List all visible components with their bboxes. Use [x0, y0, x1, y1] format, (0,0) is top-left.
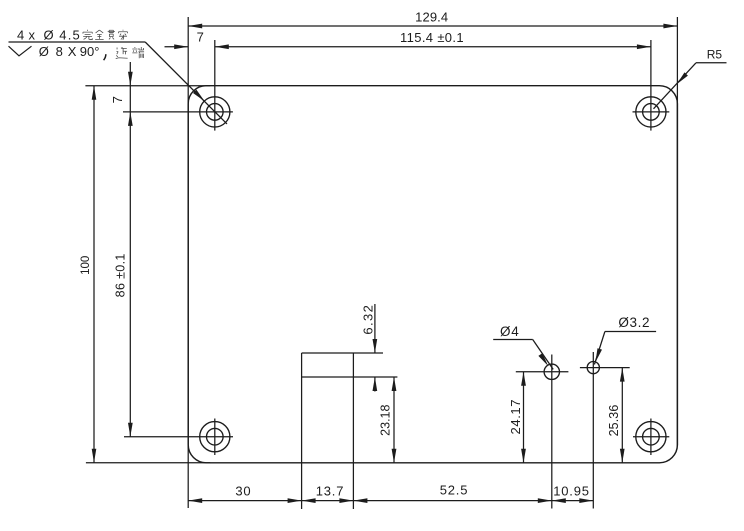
svg-text:4.5: 4.5	[59, 28, 81, 43]
svg-text:23.18: 23.18	[379, 405, 393, 436]
svg-text:10.95: 10.95	[553, 484, 590, 499]
svg-text:Ø4: Ø4	[500, 324, 519, 339]
svg-text:8: 8	[56, 44, 63, 59]
svg-text:6.32: 6.32	[360, 304, 375, 335]
svg-text:100: 100	[80, 256, 92, 275]
svg-text:25.36: 25.36	[607, 405, 621, 437]
svg-text:4: 4	[17, 28, 24, 43]
svg-text:90°: 90°	[80, 44, 100, 59]
svg-text:R5: R5	[707, 48, 723, 62]
svg-text:115.4 ±0.1: 115.4 ±0.1	[400, 30, 464, 45]
svg-text:129.4: 129.4	[415, 10, 448, 25]
svg-text:24.17: 24.17	[508, 399, 523, 435]
svg-text:7: 7	[197, 30, 204, 45]
svg-text:13.7: 13.7	[316, 484, 345, 499]
svg-text:Ø3.2: Ø3.2	[618, 315, 650, 330]
svg-text:Ø: Ø	[39, 44, 49, 59]
svg-text:X: X	[68, 44, 77, 59]
svg-text:52.5: 52.5	[440, 483, 469, 498]
svg-text:30: 30	[235, 484, 251, 499]
svg-text:Ø: Ø	[44, 28, 54, 43]
svg-text:86 ±0.1: 86 ±0.1	[114, 253, 128, 297]
svg-text:7: 7	[110, 96, 125, 103]
svg-text:x: x	[29, 28, 36, 43]
